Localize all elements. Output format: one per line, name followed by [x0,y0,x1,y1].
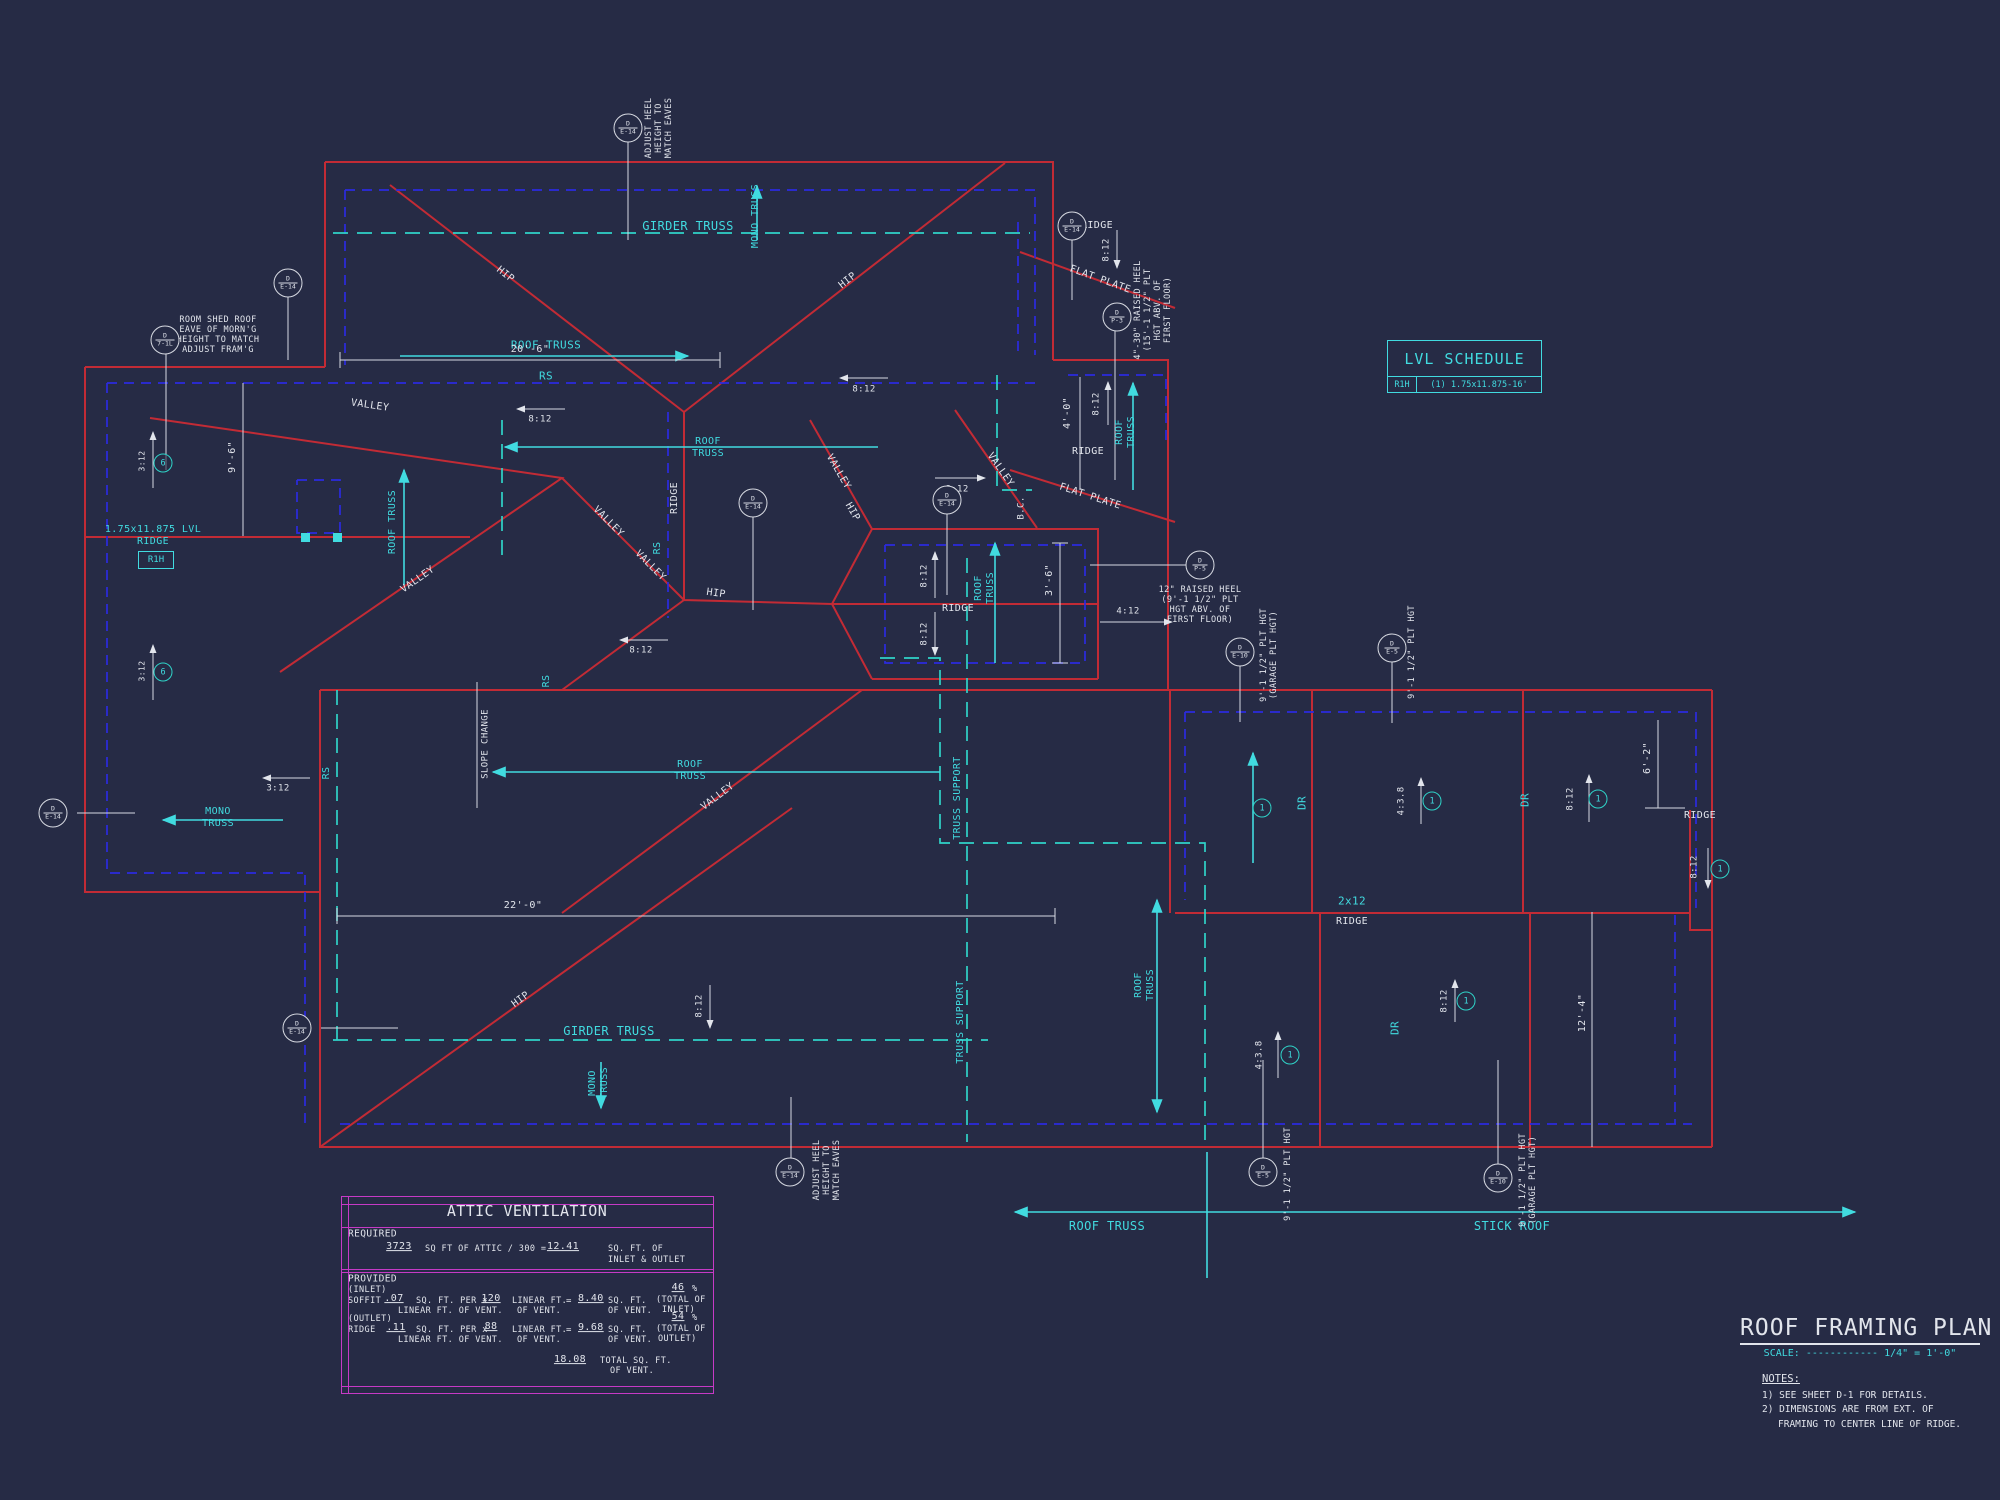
lvl-schedule: LVL SCHEDULE R1H (1) 1.75x11.875-16' [1387,340,1542,393]
dim-9-6: 9'-6" [227,441,239,473]
slope-3-12-b: 3:12 [137,451,146,472]
attic-table-rule [342,1204,713,1205]
note-2: 2) DIMENSIONS ARE FROM EXT. OF [1762,1403,1980,1417]
room-shed-note: ROOM SHED ROOF EAVE OF MORN'G HEIGHT TO … [177,315,260,355]
ridge-label-hex: RIDGE [942,603,974,615]
callout-p3: DP-3 [1103,303,1132,332]
note-2-cont: FRAMING TO CENTER LINE OF RIDGE. [1778,1418,1980,1432]
rs-label-2: RS [652,542,664,555]
slope-8-12-k: 8:12 [1690,855,1701,878]
slope-8-12-i: 8:12 [629,646,652,657]
lvl-tag-box: R1H [138,551,174,569]
ridge-2x12-label: 2x12 [1338,896,1366,909]
rs-label-4: RS [541,675,553,688]
stick-roof-span-label: STICK ROOF [1474,1219,1550,1233]
plan-annotations: GIRDER TRUSSMONO TRUSSROOF TRUSSROOF TRU… [0,0,2000,1500]
roof-truss-left-label: ROOF TRUSS [387,490,399,554]
callout-e14-center: DE-14 [933,486,962,515]
callout-e10-bottom: DE-10 [1484,1164,1513,1193]
callout-e14-hex: DE-14 [739,489,768,518]
slope-8-12-j: 8:12 [1566,787,1577,810]
slope-8-12-d: 8:12 [920,564,931,587]
adjust-heel-note-bottom: ADJUST HEEL HEIGHT TO MATCH EAVES [812,1140,842,1201]
dr-label-1: DR [1297,796,1310,810]
callout-shed: D7-1L [151,326,180,355]
roof-truss-mid-label: ROOF TRUSS [692,436,724,460]
dim-6-2: 6'-2" [1642,742,1654,774]
slope-8-12-a: 8:12 [528,415,551,426]
roof-truss-bottom-label: ROOF TRUSS [674,759,706,783]
mono-truss-top-label: MONO TRUSS [750,184,762,248]
raised-heel-note-p3: 4"-30" RAISED HEEL (15'-1 1/2" PLT HGT A… [1133,260,1173,359]
roof-framing-plan-sheet: GIRDER TRUSSMONO TRUSSROOF TRUSSROOF TRU… [0,0,2000,1500]
girder-truss-top-label: GIRDER TRUSS [642,219,734,233]
slope-3-12-a: 3:12 [266,784,289,795]
callout-e14-bottom: DE-14 [776,1158,805,1187]
valley-label-2: VALLEY [399,564,437,596]
roof-truss-hex-label: ROOF TRUSS [973,572,997,604]
hip-label-3: HIP [706,587,727,601]
title-block: ROOF FRAMING PLAN SCALE: ------------ 1/… [1740,1315,1980,1432]
slope-key-1-f: 1 [1457,992,1476,1011]
slope-8-12-f: 8:12 [1102,238,1113,261]
girder-truss-bottom-label: GIRDER TRUSS [563,1024,655,1038]
dr-label-3: DR [1390,1021,1403,1035]
plt-note-e10-top: 9'-1 1/2" PLT HGT (GARAGE PLT HGT) [1259,608,1279,702]
attic-table-rule [342,1386,713,1387]
callout-p5: DP-5 [1186,551,1215,580]
slope-4-12: 4:12 [1116,607,1139,618]
lvl-row-tag: R1H [1388,377,1417,392]
ridge-label-center: RIDGE [669,482,681,514]
slope-8-12-b: 8:12 [852,385,875,396]
callout-e10-garage-top: DE-10 [1226,638,1255,667]
slope-3-12-c: 3:12 [137,661,146,682]
notes-heading: NOTES: [1762,1373,1980,1385]
valley-label-1: VALLEY [350,397,390,414]
sheet-title: ROOF FRAMING PLAN [1740,1315,1980,1345]
slope-8-12-l: 8:12 [1440,989,1451,1012]
roof-truss-wing-label: ROOF TRUSS [1114,416,1138,448]
callout-e5-garage-top: DE-5 [1378,634,1407,663]
slope-key-6-a: 6 [154,454,173,473]
attic-table-rule [342,1272,713,1273]
hip-label-5: HIP [842,501,862,524]
ridge-label-right: RIDGE [1684,810,1716,822]
slope-key-1-a: 1 [1253,799,1272,818]
lvl-row-desc: (1) 1.75x11.875-16' [1417,377,1541,392]
rs-label-1: RS [539,371,553,384]
callout-e14-upper-right: DE-14 [1058,212,1087,241]
attic-table-rule [342,1269,713,1270]
dim-12-4: 12'-4" [1577,994,1589,1033]
lvl-schedule-title: LVL SCHEDULE [1387,340,1542,377]
truss-support-label-2: TRUSS SUPPORT [955,980,967,1063]
callout-e5-bottom: DE-5 [1249,1158,1278,1187]
sheet-scale: SCALE: ------------ 1/4" = 1'-0" [1740,1348,1980,1359]
roof-truss-garage-label: ROOF TRUSS [1133,969,1157,1001]
slope-key-6-b: 6 [154,663,173,682]
dim-3-6: 3'-6" [1044,564,1056,596]
plt-note-e10-bottom: 9'-1 1/2" PLT HGT (GARAGE PLT HGT) [1518,1133,1538,1227]
hip-label-2: HIP [837,270,859,291]
slope-4-3-8-b: 4:3.8 [1255,1040,1266,1069]
hip-label-4: HIP [510,990,533,1011]
valley-label-3: VALLEY [590,504,626,540]
dim-20-6: 20'-6" [511,344,550,356]
slope-4-3-8-a: 4:3.8 [1397,786,1408,815]
mono-truss-bottom-label: MONO TRUSS [587,1067,611,1099]
valley-label-6: VALLEY [984,451,1016,489]
attic-ventilation-table [341,1196,714,1394]
flat-plate-label-1: FLAT PLATE [1068,263,1132,296]
dr-label-2: DR [1520,793,1533,807]
hip-label-1: HIP [494,264,516,285]
callout-e14-left: DE-14 [39,799,68,828]
slope-change-label: SLOPE CHANGE [481,709,492,779]
lvl-ridge-note: 1.75x11.875 LVL RIDGE [105,524,201,548]
slope-8-12-g: 8:12 [1092,392,1103,415]
slope-key-1-c: 1 [1589,790,1608,809]
mono-truss-left-label: MONO TRUSS [202,806,234,830]
callout-e14-lower-left: DE-14 [283,1014,312,1043]
dim-22-0: 22'-0" [504,900,543,912]
raised-heel-note-p5: 12" RAISED HEEL (9'-1 1/2" PLT HGT ABV. … [1159,585,1242,625]
note-1: 1) SEE SHEET D-1 FOR DETAILS. [1762,1389,1980,1403]
valley-label-5: VALLEY [823,452,852,491]
roof-truss-span-label: ROOF TRUSS [1069,1219,1145,1233]
valley-label-7: VALLEY [699,781,737,814]
truss-support-label-1: TRUSS SUPPORT [952,756,964,839]
lvl-schedule-row: R1H (1) 1.75x11.875-16' [1387,377,1542,393]
slope-8-12-h: 8:12 [695,994,706,1017]
bc-label: B.C. [1017,496,1028,519]
slope-key-1-b: 1 [1423,792,1442,811]
slope-key-1-d: 1 [1711,860,1730,879]
callout-e14-upper-left: DE-14 [274,269,303,298]
attic-table-rule [348,1197,349,1393]
plt-note-e5-top: 9'-1 1/2" PLT HGT [1407,605,1417,699]
slope-key-1-e: 1 [1281,1046,1300,1065]
rs-label-3: RS [321,767,333,780]
slope-8-12-e: 8:12 [920,622,931,645]
callout-e14-top: DE-14 [614,114,643,143]
flat-plate-label-2: FLAT PLATE [1058,481,1123,512]
plt-note-e5-bottom: 9'-1 1/2" PLT HGT [1283,1127,1293,1221]
ridge-2x12-sub: RIDGE [1336,916,1368,928]
ridge-label-wing: RIDGE [1072,446,1104,458]
attic-table-rule [342,1227,713,1228]
adjust-heel-note-top: ADJUST HEEL HEIGHT TO MATCH EAVES [644,98,674,159]
dim-4-0: 4'-0" [1062,397,1074,429]
